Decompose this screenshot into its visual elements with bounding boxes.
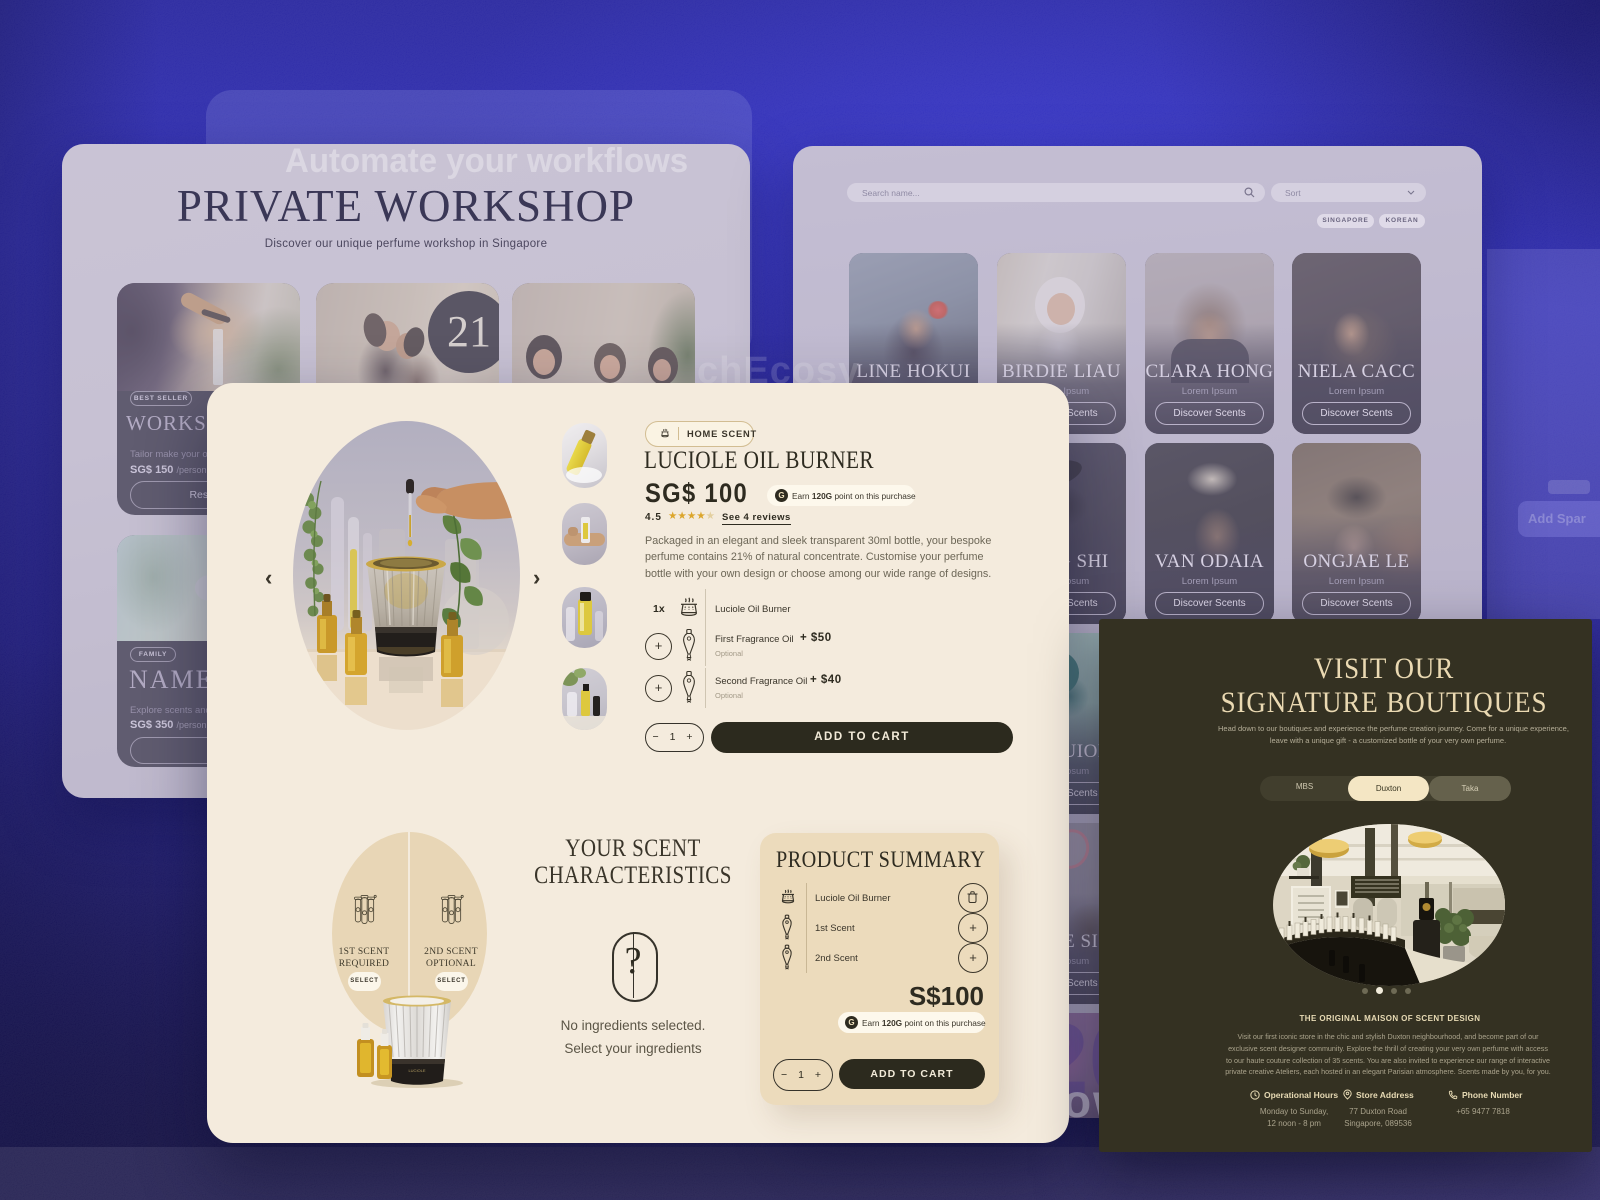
svg-text:LUCIOLE: LUCIOLE xyxy=(408,1068,425,1073)
